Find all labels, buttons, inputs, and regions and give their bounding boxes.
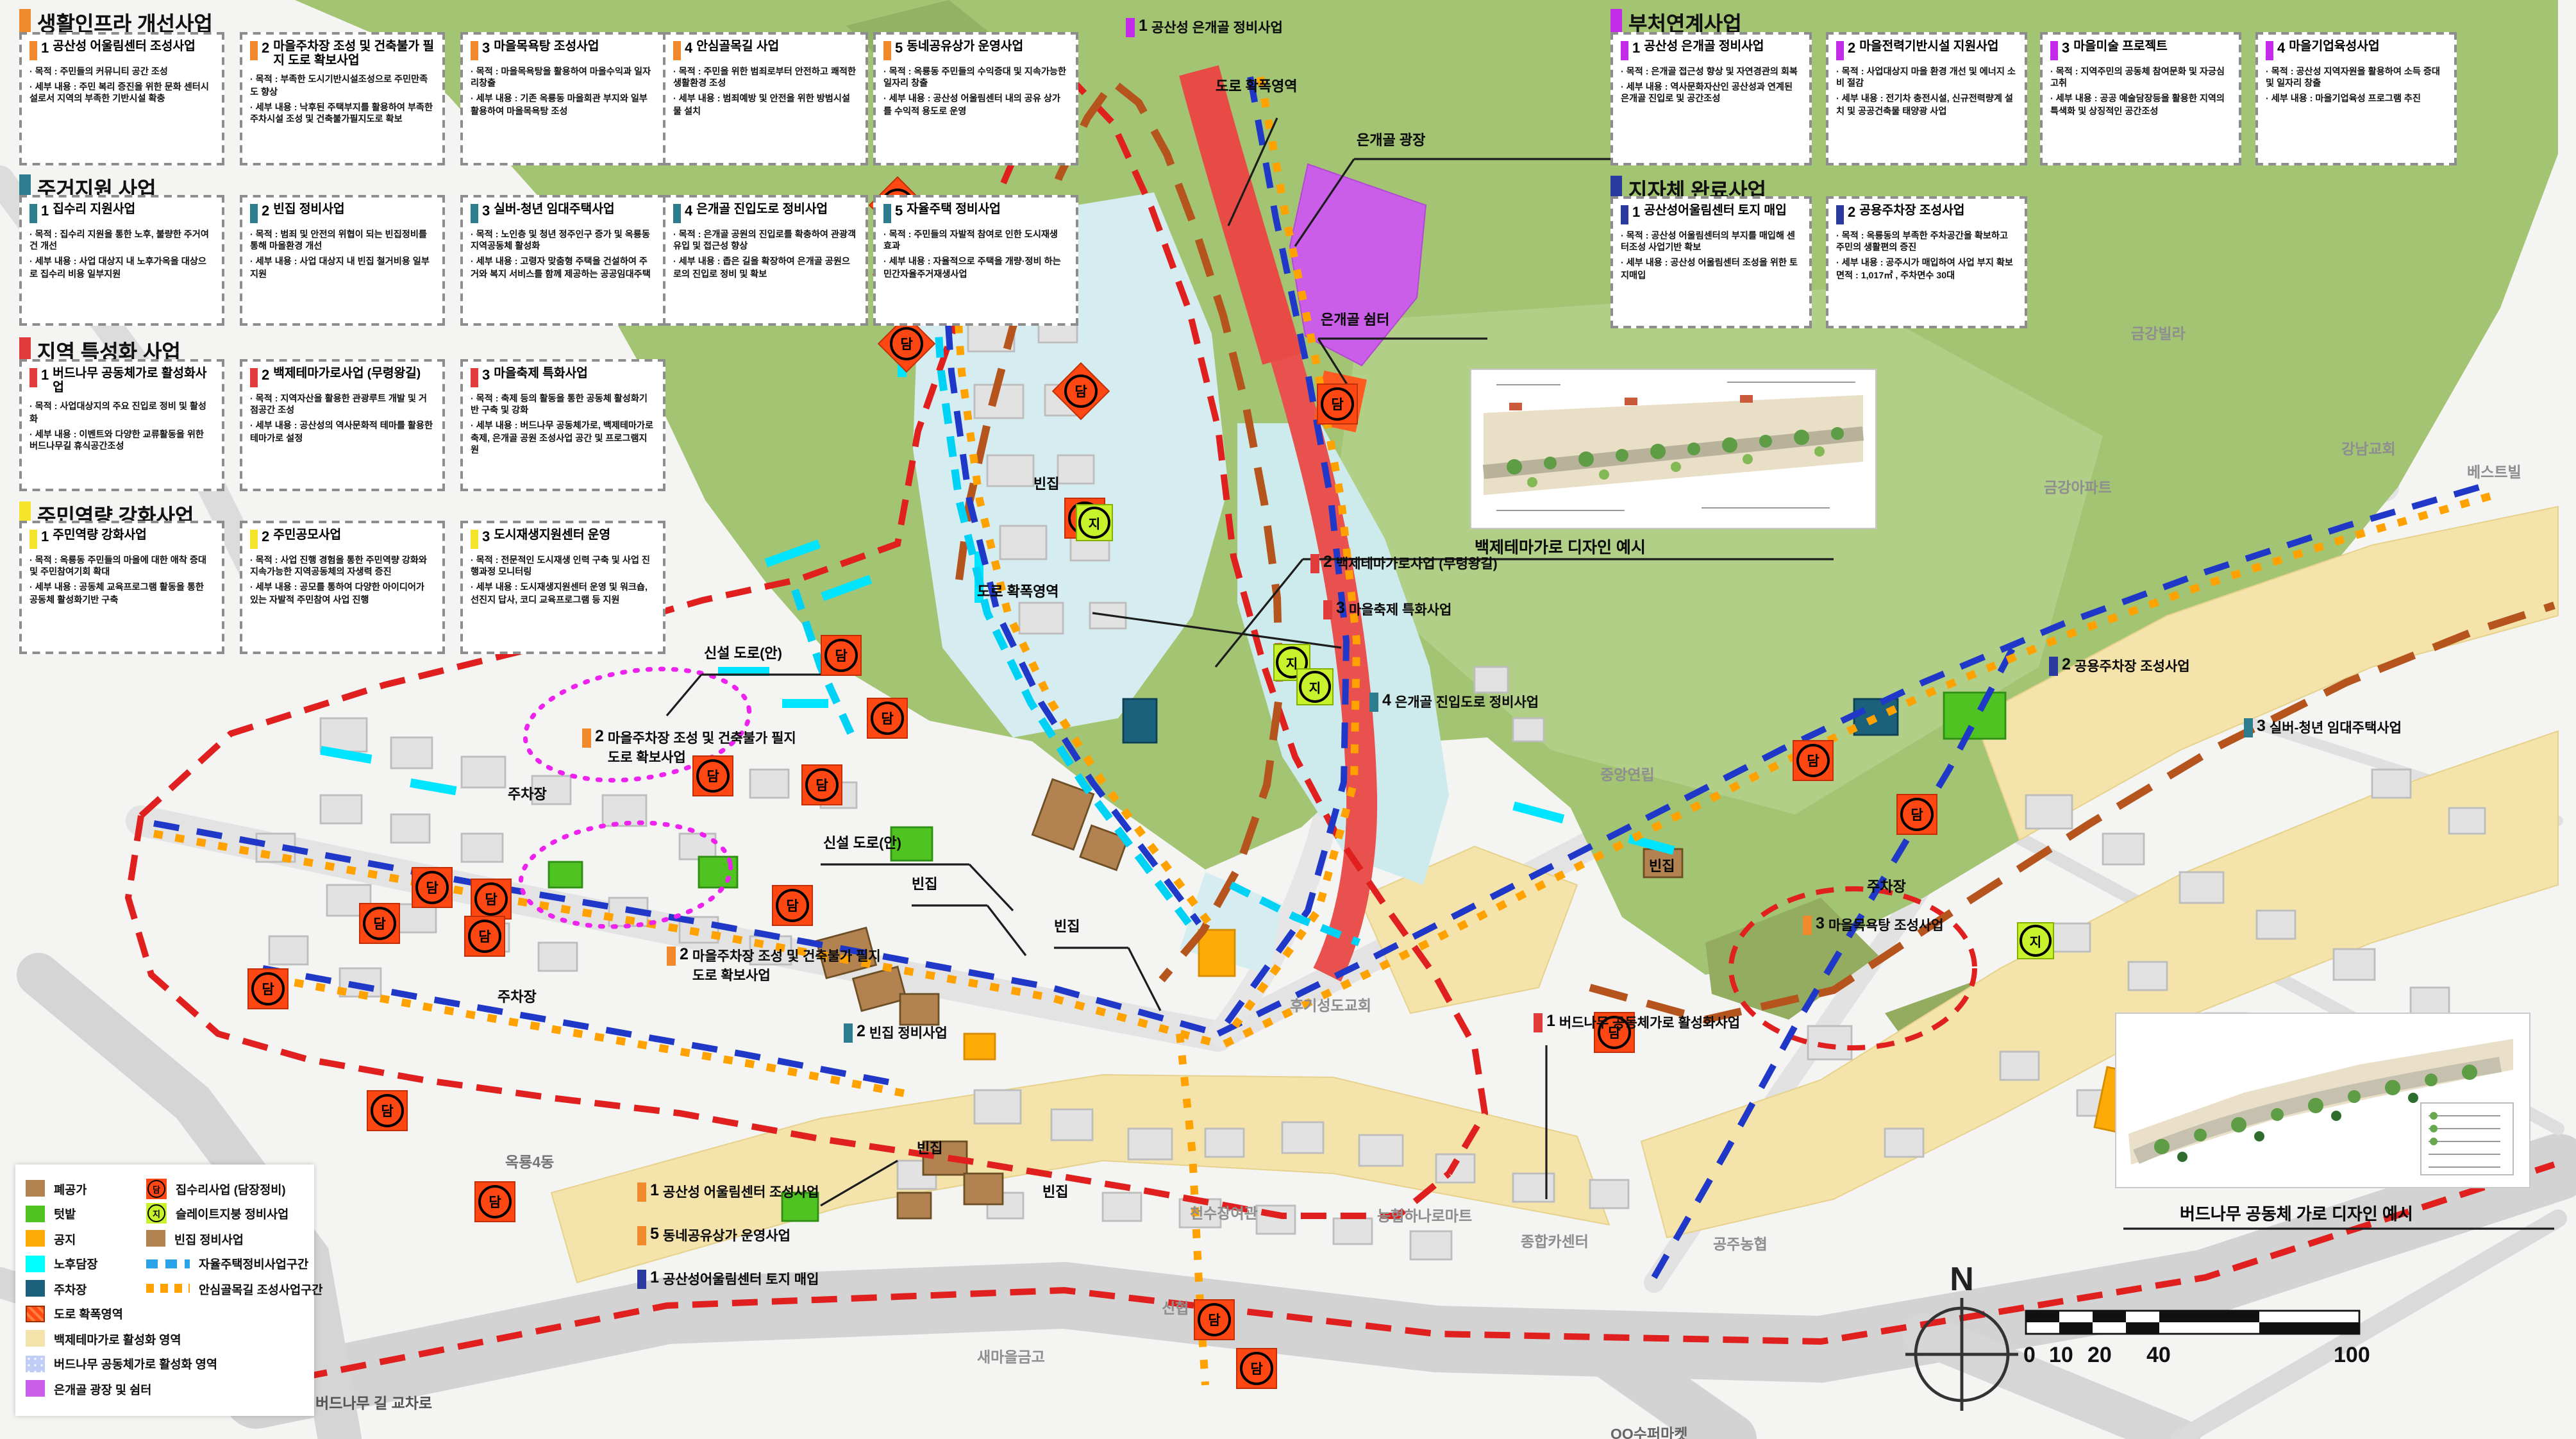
wall-repair-marker: 담 — [465, 917, 504, 955]
wall-repair-marker: 담 — [368, 1091, 406, 1130]
project-card: 1공산성 어울림센터 조성사업· 목적 : 주민들의 커뮤니티 공간 조성· 세… — [19, 32, 224, 165]
project-card: 1공산성어울림센터 토지 매입· 목적 : 공산성 어울림센터의 부지를 매입해… — [1610, 196, 1812, 328]
legend-swatch — [26, 1181, 45, 1197]
project-card: 2마을전력기반시설 지원사업· 목적 : 사업대상지 마을 환경 개선 및 에너… — [1826, 32, 2027, 165]
roof-repair-marker: 지 — [1077, 505, 1112, 540]
scale-20: 20 — [2087, 1343, 2112, 1367]
project-card: 3마을미술 프로젝트· 목적 : 지역주민의 공동체 참여문화 및 자긍심 고취… — [2040, 32, 2241, 165]
map-label-land-purchase: 1공산성어울림센터 토지 매입 — [637, 1270, 819, 1289]
inset-willow-street — [2116, 1013, 2530, 1188]
legend-item-wall-repair: 담집수리사업 (담장정비) — [146, 1176, 322, 1201]
project-card: 3도시재생지원센터 운영· 목적 : 전문적인 도시재생 인력 구축 및 사업 … — [460, 521, 665, 654]
label-vacant-5: 빈집 — [1649, 859, 1675, 875]
ji-badge: 지 — [1078, 507, 1110, 539]
map-label-silver-youth-housing: 3실버-청년 임대주택사업 — [2244, 718, 2402, 737]
legend-item-self-housing: 자율주택정비사업구간 — [146, 1251, 322, 1276]
label-road-widening: 도로 확폭영역 — [1216, 80, 1298, 95]
masterplan-poster: N 0 10 20 40 100 담 담 담 담 담 담 담 담 담 담 담 담… — [0, 0, 2576, 1439]
project-card: 1집수리 지원사업· 목적 : 집수리 지원을 통한 노후, 불량한 주거여건 … — [19, 195, 224, 326]
legend-swatch-dotted — [26, 1356, 45, 1372]
map-label-festival: 3마을축제 특화사업 — [1323, 600, 1451, 619]
place-cheonsu-inn: 천수장여관 — [1190, 1203, 1258, 1224]
legend-item-plaza: 은개골 광장 및 쉼터 — [26, 1376, 304, 1401]
place-geumgang-villa: 금강빌라 — [2131, 323, 2186, 344]
label-eungaegol-shelter: 은개골 쉼터 — [1321, 313, 1389, 328]
inset-theme-street — [1471, 369, 1876, 528]
wall-repair-marker: 담 — [1195, 1300, 1234, 1339]
project-card: 4안심골목길 사업· 목적 : 주민을 위한 범죄로부터 안전하고 쾌적한 생활… — [663, 32, 868, 165]
wall-repair-marker: 담 — [472, 880, 510, 918]
label-eungaegol-plaza: 은개골 광장 — [1357, 133, 1425, 149]
roof-repair-marker: 지 — [1298, 669, 1332, 704]
project-card: 2백제테마가로사업 (무령왕길)· 목적 : 지역자산을 활용한 관광루트 개발… — [240, 359, 445, 491]
label-parking-1: 주차장 — [508, 787, 547, 803]
legend-item-safe-alley: 안심골목길 조성사업구간 — [146, 1276, 322, 1301]
place-bestville: 베스트빌 — [2467, 462, 2522, 482]
label-vacant-6: 빈집 — [1033, 477, 1060, 492]
legend-swatch-blue-dash — [146, 1259, 190, 1268]
label-vacant-3: 빈집 — [917, 1141, 943, 1157]
project-card: 1주민역량 강화사업· 목적 : 옥룡동 주민들의 마을에 대한 애착 증대 및… — [19, 521, 224, 654]
map-label-parking-lot-project-2: 2마을주차장 조성 및 건축불가 필지 도로 확보사업 — [667, 947, 895, 985]
label-new-road-2: 신설 도로(안) — [823, 836, 901, 852]
legend-swatch-hatched — [26, 1306, 45, 1322]
place-shinhyup: 신협 — [1162, 1298, 1189, 1318]
wall-repair-marker: 담 — [1794, 741, 1832, 780]
project-card: 3마을목욕탕 조성사업· 목적 : 마을목욕탕을 활용하여 마을수익과 일자리창… — [460, 32, 665, 165]
scale-40: 40 — [2146, 1343, 2171, 1367]
place-willow-crossing: 버드나무 길 교차로 — [315, 1393, 432, 1413]
wall-repair-marker: 담 — [822, 636, 860, 675]
place-geumgang-apt: 금강아파트 — [2044, 477, 2112, 498]
caption-willow-street-design: 버드나무 공동체 가로 디자인 예시 — [2180, 1200, 2413, 1225]
scale-0: 0 — [2023, 1343, 2036, 1367]
project-card: 2공용주차장 조성사업· 목적 : 옥룡동의 부족한 주차공간을 확보하고 주민… — [1826, 196, 2027, 328]
wall-repair-marker: 담 — [1318, 385, 1357, 423]
scale-100: 100 — [2334, 1343, 2370, 1367]
project-card: 1공산성 은개골 정비사업· 목적 : 은개골 접근성 향상 및 자연경관의 회… — [1610, 32, 1812, 165]
project-card: 5동네공유상가 운영사업· 목적 : 옥룡동 주민들의 수익증대 및 지속가능한… — [873, 32, 1078, 165]
place-saemaul: 새마을금고 — [977, 1347, 1045, 1367]
legend-item-vacant-project: 빈집 정비사업 — [146, 1226, 322, 1251]
map-label-public-parking: 2공용주차장 조성사업 — [2049, 657, 2190, 676]
project-card: 2마을주차장 조성 및 건축불가 필지 도로 확보사업· 목적 : 부족한 도시… — [240, 32, 445, 165]
legend-column-2: 담집수리사업 (담장정비) 지슬레이트지붕 정비사업 빈집 정비사업 자율주택정… — [146, 1176, 322, 1301]
project-card: 2빈집 정비사업· 목적 : 범죄 및 안전의 위협이 되는 빈집정비를 통해 … — [240, 195, 445, 326]
roof-repair-marker: 지 — [2018, 923, 2053, 958]
wall-repair-marker: 담 — [773, 886, 812, 925]
compass-n-label: N — [1950, 1261, 1974, 1298]
wall-repair-marker: 담 — [1898, 795, 1936, 834]
label-vacant-2: 빈집 — [1054, 920, 1080, 935]
map-label-vacant-house-project: 2빈집 정비사업 — [844, 1023, 948, 1043]
map-label-shared-shops: 5동네공유상가 운영사업 — [637, 1226, 790, 1245]
legend-item-baekje-zone: 백제테마가로 활성화 영역 — [26, 1326, 304, 1351]
map-label-parking-lot-project-1: 2마을주차장 조성 및 건축불가 필지 도로 확보사업 — [582, 728, 810, 767]
project-card: 2주민공모사업· 목적 : 사업 진행 경험을 통한 주민역량 강화와 지속가능… — [240, 521, 445, 654]
place-jungang: 중앙연립 — [1600, 764, 1655, 785]
map-label-center-project: 1공산성 어울림센터 조성사업 — [637, 1182, 819, 1202]
label-road-widening-2: 도로 확폭영역 — [977, 585, 1059, 600]
place-supermarket: OO수퍼마켓 — [1610, 1424, 1687, 1439]
legend-swatch-orange-dot — [146, 1284, 190, 1293]
legend-item-roof-repair: 지슬레이트지붕 정비사업 — [146, 1201, 322, 1226]
place-car-center: 종합카센터 — [1521, 1231, 1589, 1252]
project-card: 4은개골 진입도로 정비사업· 목적 : 은개골 공원의 진입로를 확충하여 관… — [663, 195, 868, 326]
wall-repair-marker: 담 — [476, 1182, 514, 1221]
label-vacant-4: 빈집 — [1042, 1185, 1069, 1200]
project-card: 4마을기업육성사업· 목적 : 공산성 지역자원을 활용하여 소득 증대 및 일… — [2255, 32, 2457, 165]
map-legend: 폐공가 텃밭 공지 노후담장 주차장 도로 확폭영역 백제테마가로 활성화 영역… — [15, 1165, 314, 1416]
project-card: 1버드나무 공동체가로 활성화사업· 목적 : 사업대상지의 주요 진입로 정비… — [19, 359, 224, 491]
caption-theme-street-design: 백제테마가로 디자인 예시 — [1475, 534, 1646, 558]
label-vacant-1: 빈집 — [912, 877, 938, 893]
place-gangnam-church: 강남교회 — [2341, 439, 2396, 459]
map-label-willow-street: 1버드나무 공동체가로 활성화사업 — [1534, 1013, 1740, 1032]
map-label-bathhouse: 3마을목욕탕 조성사업 — [1803, 916, 1944, 935]
wall-repair-marker: 담 — [1237, 1349, 1276, 1388]
legend-item-willow-zone: 버드나무 공동체가로 활성화 영역 — [26, 1351, 304, 1376]
header-bar — [19, 9, 31, 35]
place-hugi-church: 후기성도교회 — [1290, 995, 1371, 1016]
label-parking-2: 주차장 — [498, 990, 537, 1006]
wall-repair-marker: 담 — [360, 904, 399, 943]
map-label-eungaegol-improvement: 1공산성 은개골 정비사업 — [1126, 18, 1283, 37]
wall-repair-marker: 담 — [868, 699, 907, 737]
place-gongju-nh: 공주농협 — [1713, 1234, 1768, 1254]
wall-repair-marker: 담 — [249, 970, 287, 1008]
legend-item-roadwiden: 도로 확폭영역 — [26, 1301, 304, 1326]
map-label-entry-road: 4은개골 진입도로 정비사업 — [1369, 693, 1539, 712]
project-card: 3실버-청년 임대주택사업· 목적 : 노인층 및 청년 정주인구 증가 및 옥… — [460, 195, 665, 326]
map-label-baekje-theme: 2백제테마가로사업 (무령왕길) — [1310, 554, 1498, 573]
label-new-road-1: 신설 도로(안) — [704, 646, 782, 662]
wall-repair-marker: 담 — [803, 766, 841, 804]
project-card: 3마을축제 특화사업· 목적 : 축제 등의 활동을 통한 공동체 활성화기반 … — [460, 359, 665, 491]
label-parking-3: 주차장 — [1867, 880, 1906, 895]
project-card: 5자율주택 정비사업· 목적 : 주민들의 자발적 참여로 인한 도시재생 효과… — [873, 195, 1078, 326]
place-okryong: 옥룡4동 — [505, 1152, 554, 1172]
place-hanaro-mart: 농협하나로마트 — [1377, 1206, 1472, 1226]
scale-10: 10 — [2049, 1343, 2073, 1367]
wall-repair-marker: 담 — [413, 868, 451, 907]
